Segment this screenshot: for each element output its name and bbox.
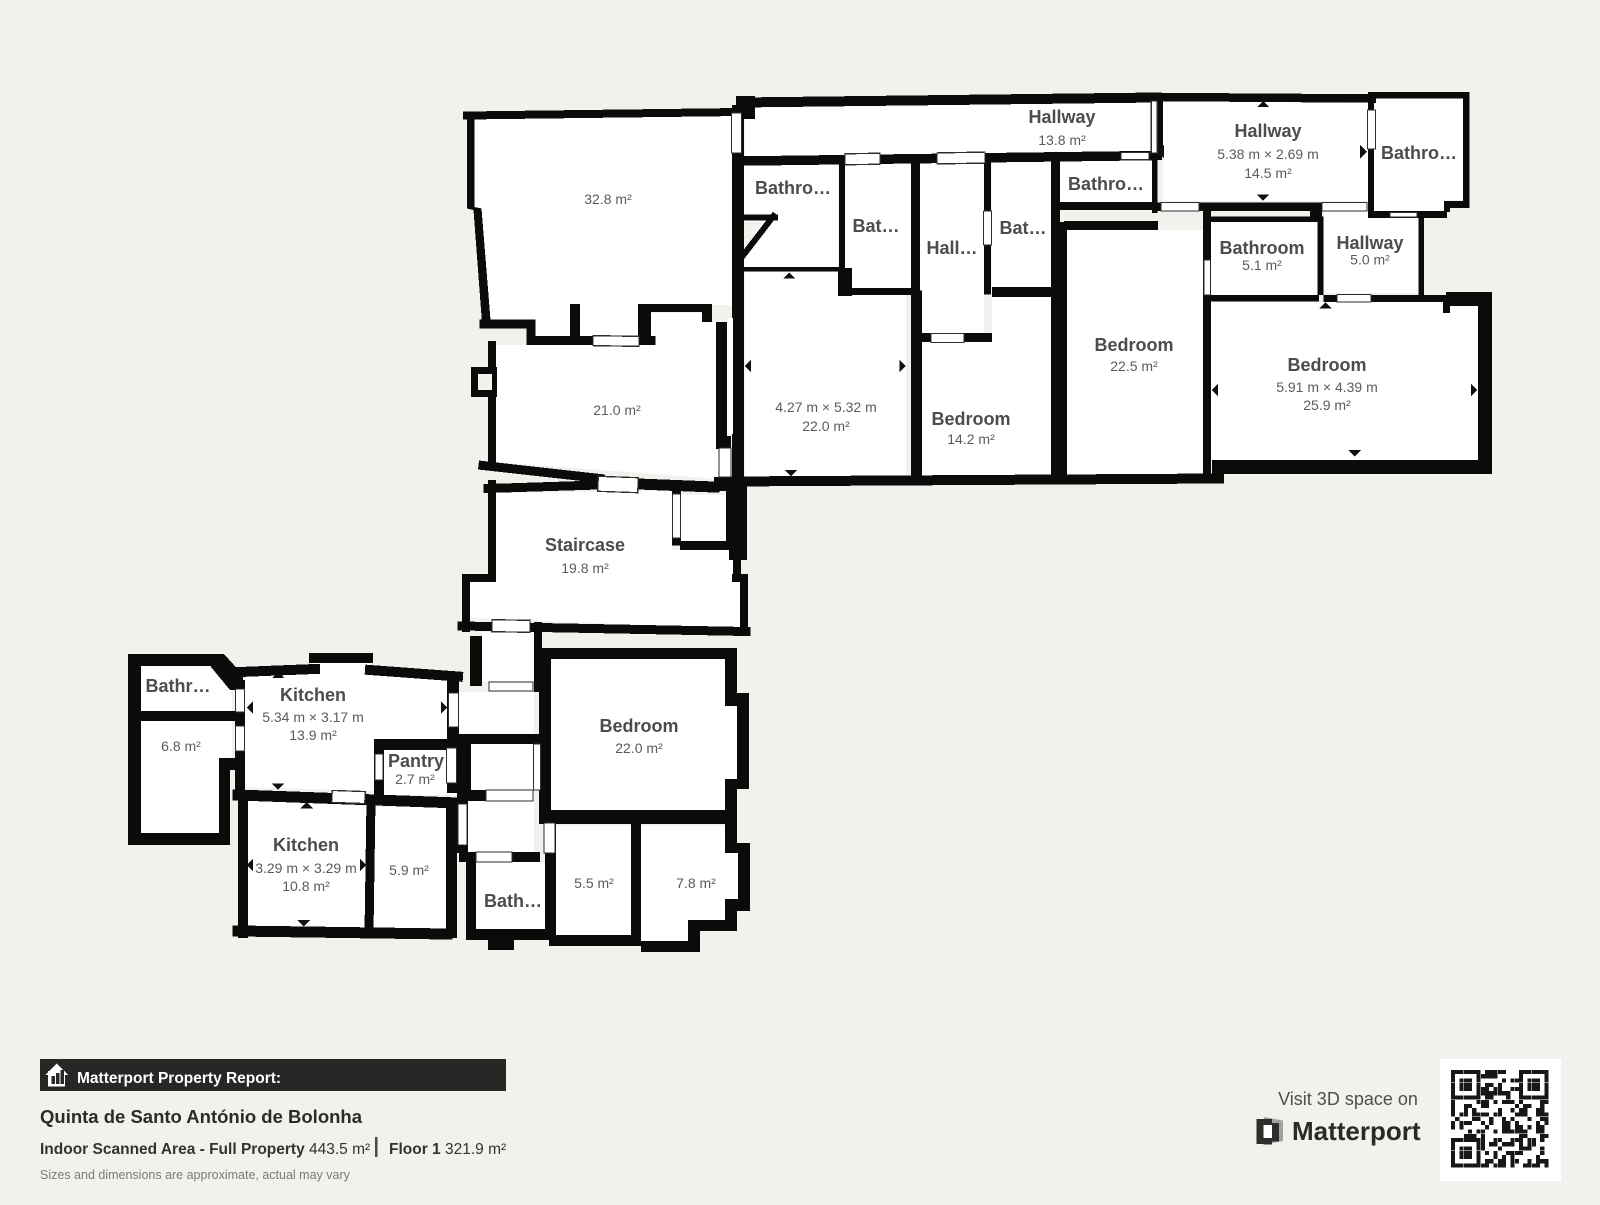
svg-text:Sizes and dimensions are appro: Sizes and dimensions are approximate, ac…	[40, 1168, 351, 1182]
svg-text:Bedroom: Bedroom	[1094, 335, 1173, 355]
svg-text:Staircase: Staircase	[545, 535, 625, 555]
svg-text:Floor 1 321.9 m²: Floor 1 321.9 m²	[389, 1141, 506, 1158]
svg-text:Hallway: Hallway	[1028, 107, 1095, 127]
svg-text:14.2 m²: 14.2 m²	[947, 431, 995, 447]
svg-text:5.5 m²: 5.5 m²	[574, 875, 614, 891]
svg-text:Kitchen: Kitchen	[273, 835, 339, 855]
svg-text:Bedroom: Bedroom	[599, 716, 678, 736]
svg-text:Bathro…: Bathro…	[1068, 174, 1144, 194]
svg-text:Bathroom: Bathroom	[1220, 238, 1305, 258]
svg-text:Matterport Property Report:: Matterport Property Report:	[77, 1070, 281, 1087]
svg-text:22.0 m²: 22.0 m²	[802, 418, 850, 434]
svg-text:Bathro…: Bathro…	[755, 178, 831, 198]
svg-text:22.5 m²: 22.5 m²	[1110, 358, 1158, 374]
svg-text:Matterport: Matterport	[1292, 1116, 1421, 1146]
svg-text:Hallway: Hallway	[1336, 233, 1403, 253]
svg-text:Bathr…: Bathr…	[145, 676, 210, 696]
svg-text:Indoor Scanned Area - Full Pro: Indoor Scanned Area - Full Property 443.…	[40, 1141, 370, 1158]
svg-text:19.8 m²: 19.8 m²	[561, 560, 609, 576]
svg-text:22.0 m²: 22.0 m²	[615, 740, 663, 756]
svg-text:Quinta de Santo António de Bol: Quinta de Santo António de Bolonha	[40, 1106, 363, 1127]
svg-text:7.8 m²: 7.8 m²	[676, 875, 716, 891]
svg-text:5.34 m × 3.17 m: 5.34 m × 3.17 m	[262, 709, 364, 725]
svg-text:Bathro…: Bathro…	[1381, 143, 1457, 163]
svg-text:5.1 m²: 5.1 m²	[1242, 257, 1282, 273]
svg-text:13.8 m²: 13.8 m²	[1038, 132, 1086, 148]
svg-text:Bedroom: Bedroom	[931, 409, 1010, 429]
svg-text:3.29 m × 3.29 m: 3.29 m × 3.29 m	[255, 860, 357, 876]
svg-text:14.5 m²: 14.5 m²	[1244, 165, 1292, 181]
svg-text:4.27 m × 5.32 m: 4.27 m × 5.32 m	[775, 399, 877, 415]
svg-text:Kitchen: Kitchen	[280, 685, 346, 705]
svg-text:Bat…: Bat…	[999, 218, 1046, 238]
svg-text:Visit 3D space on: Visit 3D space on	[1278, 1089, 1418, 1109]
svg-text:21.0 m²: 21.0 m²	[593, 402, 641, 418]
svg-text:Bath…: Bath…	[484, 891, 542, 911]
svg-text:5.0 m²: 5.0 m²	[1350, 252, 1390, 268]
svg-text:Pantry: Pantry	[388, 751, 444, 771]
svg-text:10.8 m²: 10.8 m²	[282, 878, 330, 894]
svg-text:2.7 m²: 2.7 m²	[395, 771, 435, 787]
svg-text:Bat…: Bat…	[852, 216, 899, 236]
svg-text:6.8 m²: 6.8 m²	[161, 738, 201, 754]
svg-text:13.9 m²: 13.9 m²	[289, 727, 337, 743]
svg-text:Hallway: Hallway	[1234, 121, 1301, 141]
svg-text:25.9 m²: 25.9 m²	[1303, 397, 1351, 413]
svg-text:32.8 m²: 32.8 m²	[584, 191, 632, 207]
svg-text:Bedroom: Bedroom	[1287, 355, 1366, 375]
svg-text:5.38 m × 2.69 m: 5.38 m × 2.69 m	[1217, 146, 1319, 162]
svg-text:5.91 m × 4.39 m: 5.91 m × 4.39 m	[1276, 379, 1378, 395]
svg-text:5.9 m²: 5.9 m²	[389, 862, 429, 878]
svg-text:Hall…: Hall…	[926, 238, 977, 258]
